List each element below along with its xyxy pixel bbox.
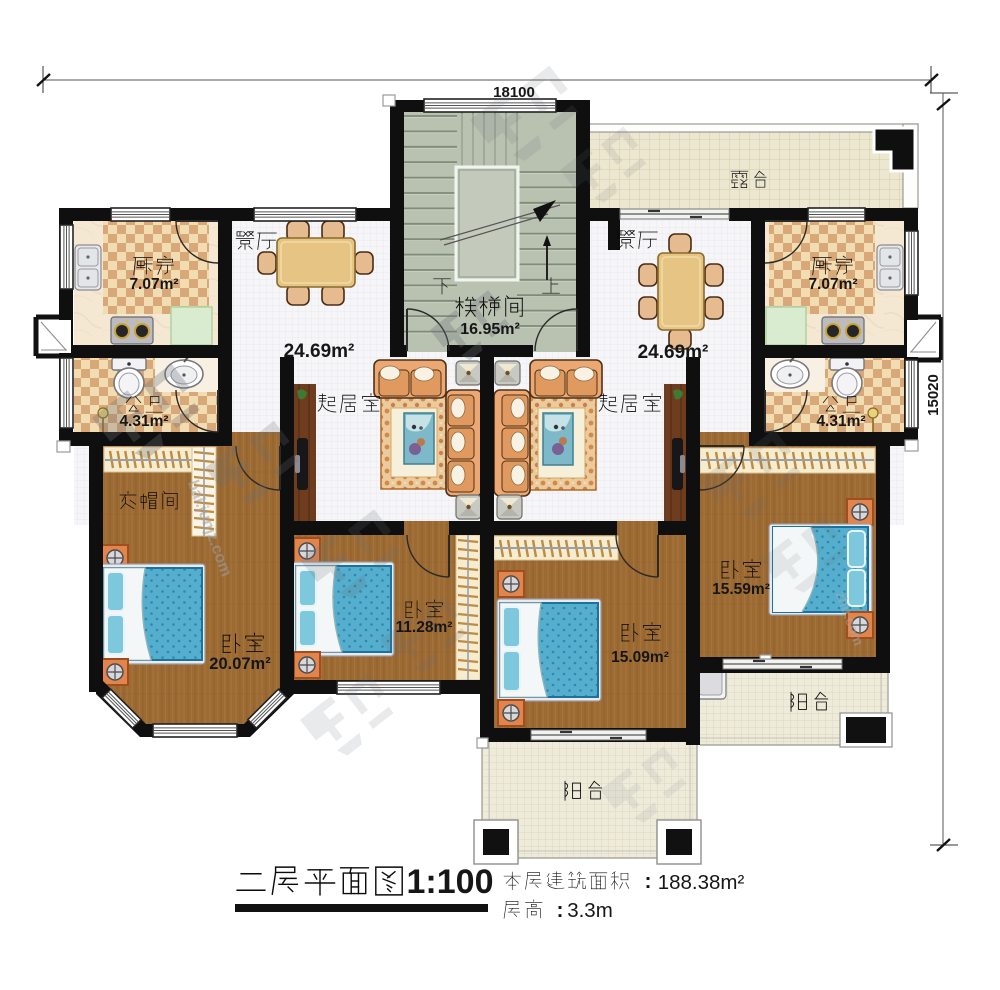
svg-text:7.07m²: 7.07m² [808, 276, 857, 293]
svg-text:3.3m: 3.3m [567, 899, 613, 922]
svg-text:24.69m²: 24.69m² [284, 341, 355, 362]
svg-text:11.28m²: 11.28m² [396, 619, 453, 636]
svg-text:188.38m²: 188.38m² [658, 871, 745, 894]
svg-text:1:100: 1:100 [407, 863, 494, 901]
svg-text:15.09m²: 15.09m² [611, 649, 669, 666]
svg-text:15020: 15020 [925, 374, 942, 416]
svg-text:20.07m²: 20.07m² [209, 655, 271, 673]
svg-text:16.95m²: 16.95m² [460, 321, 520, 338]
svg-text:4.31m²: 4.31m² [816, 413, 865, 430]
svg-text:7.07m²: 7.07m² [129, 276, 178, 293]
svg-text::: : [645, 870, 652, 893]
svg-text:4.31m²: 4.31m² [119, 413, 168, 430]
svg-text::: : [557, 899, 564, 922]
svg-text:24.69m²: 24.69m² [638, 342, 709, 363]
svg-text:15.59m²: 15.59m² [712, 581, 770, 598]
svg-text:18100: 18100 [493, 84, 535, 101]
